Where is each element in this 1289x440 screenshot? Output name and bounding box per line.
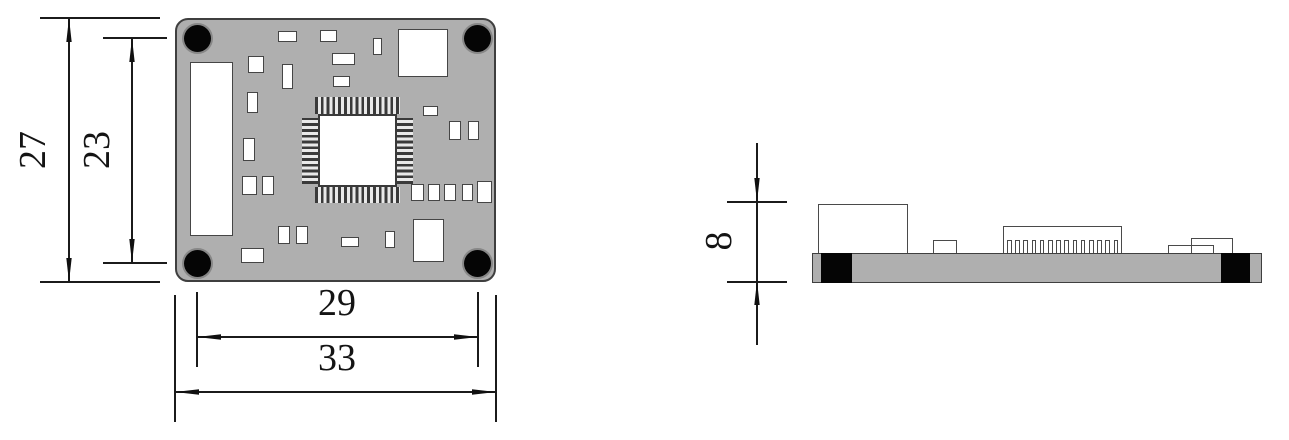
qfp-chip <box>318 114 397 187</box>
dimension-label-hole-pitch-vertical: 23 <box>78 131 116 169</box>
extension-line <box>103 262 167 264</box>
extension-line <box>40 281 160 283</box>
header-pin <box>1089 240 1094 253</box>
side-view-tall-component <box>1191 238 1233 254</box>
dimension-label-hole-pitch-horizontal: 29 <box>318 284 356 322</box>
extension-line <box>196 292 198 367</box>
component-pad <box>428 184 440 201</box>
dimension-line <box>131 38 133 263</box>
component-pad <box>241 248 264 263</box>
dimension-arrow <box>753 178 762 202</box>
header-pin <box>1081 240 1086 253</box>
dimension-line <box>175 391 496 393</box>
component-pad <box>449 121 461 140</box>
component-pad <box>333 76 350 87</box>
component-pad <box>247 92 258 113</box>
dimension-label-side-height: 8 <box>700 232 738 251</box>
dimension-line <box>68 18 70 282</box>
pcb-side-view-board <box>812 253 1262 283</box>
component-pad <box>243 138 255 161</box>
extension-line <box>495 295 497 422</box>
component-pad <box>296 226 308 244</box>
dimension-arrow <box>128 239 137 263</box>
side-view-connector <box>818 204 908 254</box>
mounting-hole <box>464 25 491 52</box>
extension-line <box>103 37 167 39</box>
side-view-end-block <box>821 253 852 283</box>
header-pin <box>1048 240 1053 253</box>
qfp-pins-bottom <box>315 187 400 203</box>
dimension-label-overall-width: 33 <box>318 339 356 377</box>
component-pad <box>242 176 257 195</box>
component-pad <box>423 106 438 116</box>
dimension-arrow <box>454 333 478 342</box>
component-pad <box>385 231 395 248</box>
component-pad <box>413 219 444 262</box>
component-pad <box>398 29 448 77</box>
component-pad <box>248 56 264 73</box>
component-pad <box>262 176 274 195</box>
component-pad <box>282 64 293 89</box>
component-pad <box>444 184 456 201</box>
header-pin <box>1056 240 1061 253</box>
header-pin <box>1007 240 1012 253</box>
mounting-hole <box>464 250 491 277</box>
qfp-pins-left <box>302 118 318 184</box>
dimension-line <box>756 143 758 345</box>
side-view-small-component <box>933 240 957 254</box>
component-pad <box>477 181 492 203</box>
header-pin <box>1073 240 1078 253</box>
dimension-label-overall-height: 27 <box>14 131 52 169</box>
component-pad <box>411 184 424 201</box>
edge-connector <box>190 62 233 236</box>
component-pad <box>278 226 290 244</box>
component-pad <box>332 53 355 65</box>
qfp-pins-right <box>397 118 413 184</box>
header-pin <box>1040 240 1045 253</box>
dimension-arrow <box>65 18 74 42</box>
header-pin <box>1064 240 1069 253</box>
dimension-arrow <box>65 258 74 282</box>
side-view-pin-header <box>1003 226 1122 254</box>
dimension-arrow <box>175 388 199 397</box>
header-pin <box>1105 240 1110 253</box>
header-pin <box>1097 240 1102 253</box>
qfp-pins-top <box>315 97 400 114</box>
mounting-hole <box>184 25 211 52</box>
component-pad <box>468 121 479 140</box>
dimension-arrow <box>197 333 221 342</box>
dimension-arrow <box>128 38 137 62</box>
component-pad <box>278 31 297 42</box>
component-pad <box>373 38 382 55</box>
header-pin <box>1114 240 1119 253</box>
component-pad <box>462 184 473 201</box>
side-view-end-block <box>1221 253 1250 283</box>
component-pad <box>341 237 359 247</box>
dimension-arrow <box>753 281 762 305</box>
dimension-arrow <box>472 388 496 397</box>
pcb-dimension-drawing: 27 23 29 33 8 <box>0 0 1289 440</box>
component-pad <box>320 30 337 42</box>
mounting-hole <box>184 250 211 277</box>
extension-line <box>40 17 160 19</box>
extension-line <box>477 292 479 367</box>
header-pin <box>1032 240 1037 253</box>
header-pin <box>1023 240 1028 253</box>
extension-line <box>174 295 176 422</box>
header-pin <box>1015 240 1020 253</box>
